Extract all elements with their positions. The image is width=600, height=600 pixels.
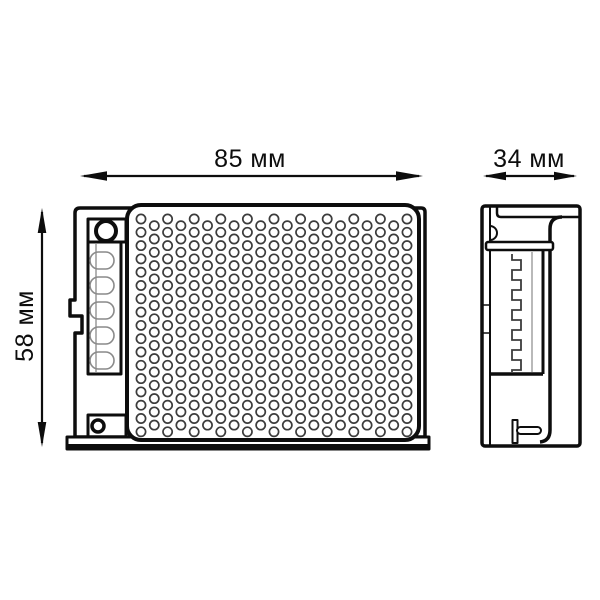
depth-dimension: 34 мм: [483, 145, 577, 180]
side-view: [482, 206, 580, 446]
width-dimension-label: 85 мм: [214, 145, 286, 173]
side-flange-bar: [486, 242, 553, 250]
height-arrowhead-bottom: [38, 422, 47, 447]
height-dimension-label: 58 мм: [11, 290, 39, 362]
height-dimension: 58 мм: [11, 208, 46, 447]
depth-arrowhead-right: [554, 172, 577, 181]
width-dimension: 85 мм: [80, 145, 423, 181]
height-arrowhead-top: [38, 208, 47, 233]
width-arrowhead-right: [396, 171, 423, 180]
depth-dimension-label: 34 мм: [493, 145, 565, 173]
technical-drawing: 85 мм 34 мм 58 мм: [0, 0, 600, 600]
width-arrowhead-left: [80, 171, 107, 180]
front-view: [67, 205, 429, 449]
side-pin-foot: [517, 427, 541, 434]
front-base-thick-edge: [67, 444, 429, 449]
